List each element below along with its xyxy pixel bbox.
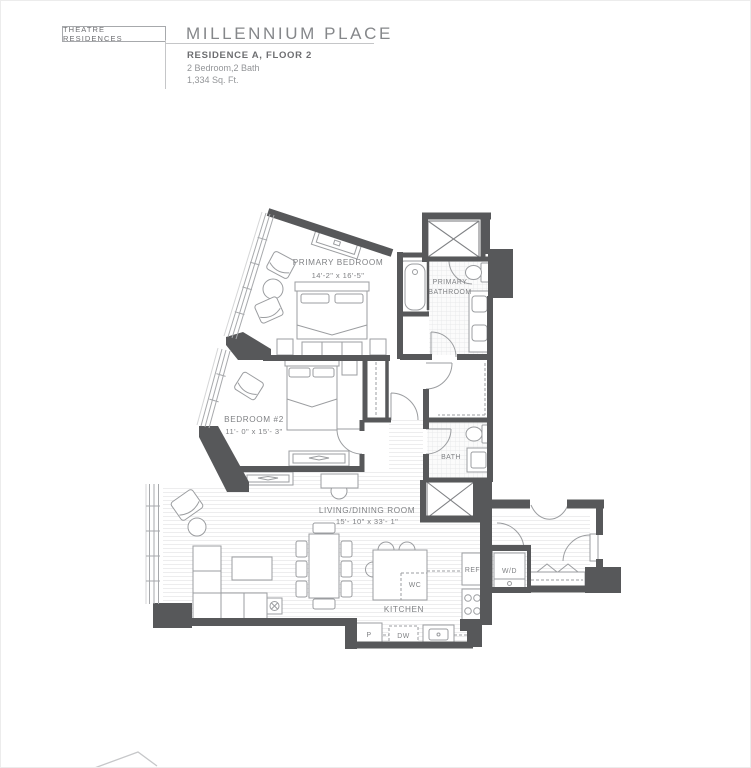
- primary-bedroom-dims: 14'-2" x 16'-5": [312, 271, 365, 280]
- closet-shelving-dashed: [438, 363, 485, 415]
- kitchen-label: KITCHEN: [384, 605, 424, 614]
- window-outer-line-2: [197, 348, 218, 425]
- bedroom2-door: [337, 429, 362, 454]
- bath-label: BATH: [441, 454, 461, 461]
- tv-console: [243, 472, 293, 485]
- kitchen-sink: [423, 625, 454, 644]
- primary-bathroom-label-2: BATHROOM: [428, 289, 471, 296]
- bathtub: [402, 261, 428, 313]
- primary-bedroom-label: PRIMARY BEDROOM: [293, 258, 384, 267]
- primary-armchair-2: [254, 296, 284, 324]
- living-side-table: [188, 518, 206, 536]
- closet-door: [426, 363, 452, 389]
- primary-armchair-1: [266, 251, 297, 280]
- floor-outlet-icon: [267, 598, 282, 614]
- floor-plan-page: THEATRE RESIDENCES MILLENNIUM PLACE RESI…: [0, 0, 751, 768]
- primary-side-table: [263, 279, 283, 299]
- lower-shaft-icon: [427, 482, 474, 518]
- side-entry-door-leaf: [590, 534, 598, 561]
- kitchen-island: [366, 542, 427, 600]
- bedroom2-dresser: [289, 451, 349, 466]
- bath-sink: [467, 448, 490, 472]
- wine-cooler-label: WC: [409, 582, 421, 589]
- pantry-label: P: [366, 632, 371, 639]
- living-dining-label: LIVING/DINING ROOM: [319, 506, 415, 515]
- range: [462, 589, 483, 621]
- nightstand-left: [277, 339, 293, 355]
- window-mullions-3: [146, 506, 160, 581]
- hall-door: [391, 393, 418, 420]
- window-wall-living: [150, 484, 159, 604]
- floor-plan-drawing: PRIMARY BEDROOM 14'-2" x 16'-5" PRIMARY …: [1, 1, 751, 768]
- bedroom2-dims: 11'- 0" x 15'- 3": [225, 427, 282, 436]
- bath-toilet: [466, 425, 490, 443]
- nightstand-right: [370, 339, 386, 355]
- living-dining-dims: 15'- 10" x 33'- 1": [336, 517, 398, 526]
- primary-bathroom-label-1: PRIMARY: [433, 279, 468, 286]
- double-vanity: [469, 291, 490, 352]
- washer-dryer-label: W/D: [502, 568, 517, 575]
- bedroom2-bed: [285, 358, 339, 430]
- primary-bed: [295, 282, 369, 356]
- refrigerator-label: REF: [465, 567, 480, 574]
- bedroom2-chair: [234, 371, 265, 401]
- north-arrow-icon: [89, 752, 157, 768]
- dishwasher-label: DW: [397, 633, 409, 640]
- bedroom2-label: BEDROOM #2: [224, 415, 284, 424]
- coffee-table: [232, 557, 272, 580]
- bedroom2-nightstand: [342, 360, 357, 375]
- shower-shaft-icon: [428, 221, 479, 257]
